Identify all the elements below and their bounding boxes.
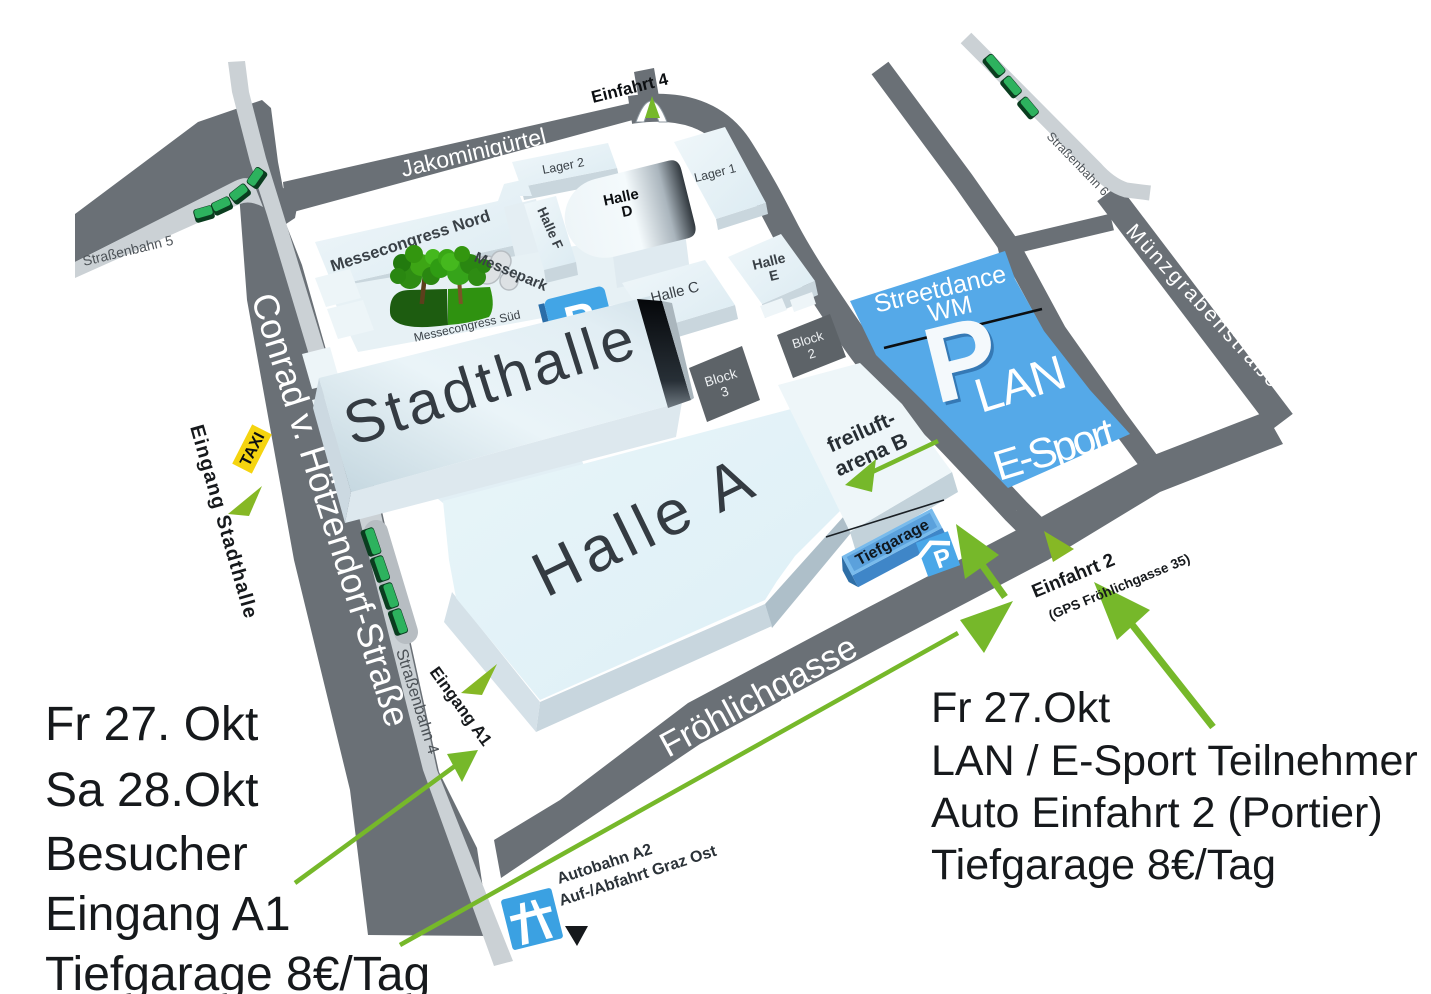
svg-text:Fr 27. Okt: Fr 27. Okt [45, 698, 258, 751]
svg-text:Tiefgarage 8€/Tag: Tiefgarage 8€/Tag [45, 948, 430, 994]
svg-text:Eingang A1: Eingang A1 [45, 888, 291, 941]
svg-text:Besucher: Besucher [45, 828, 248, 881]
svg-text:Fr 27.Okt: Fr 27.Okt [931, 684, 1110, 732]
svg-text:LAN / E-Sport Teilnehmer: LAN / E-Sport Teilnehmer [931, 737, 1418, 785]
svg-text:Tiefgarage 8€/Tag: Tiefgarage 8€/Tag [931, 841, 1276, 889]
svg-text:Auto Einfahrt 2 (Portier): Auto Einfahrt 2 (Portier) [931, 789, 1383, 837]
svg-text:Sa 28.Okt: Sa 28.Okt [45, 764, 258, 817]
